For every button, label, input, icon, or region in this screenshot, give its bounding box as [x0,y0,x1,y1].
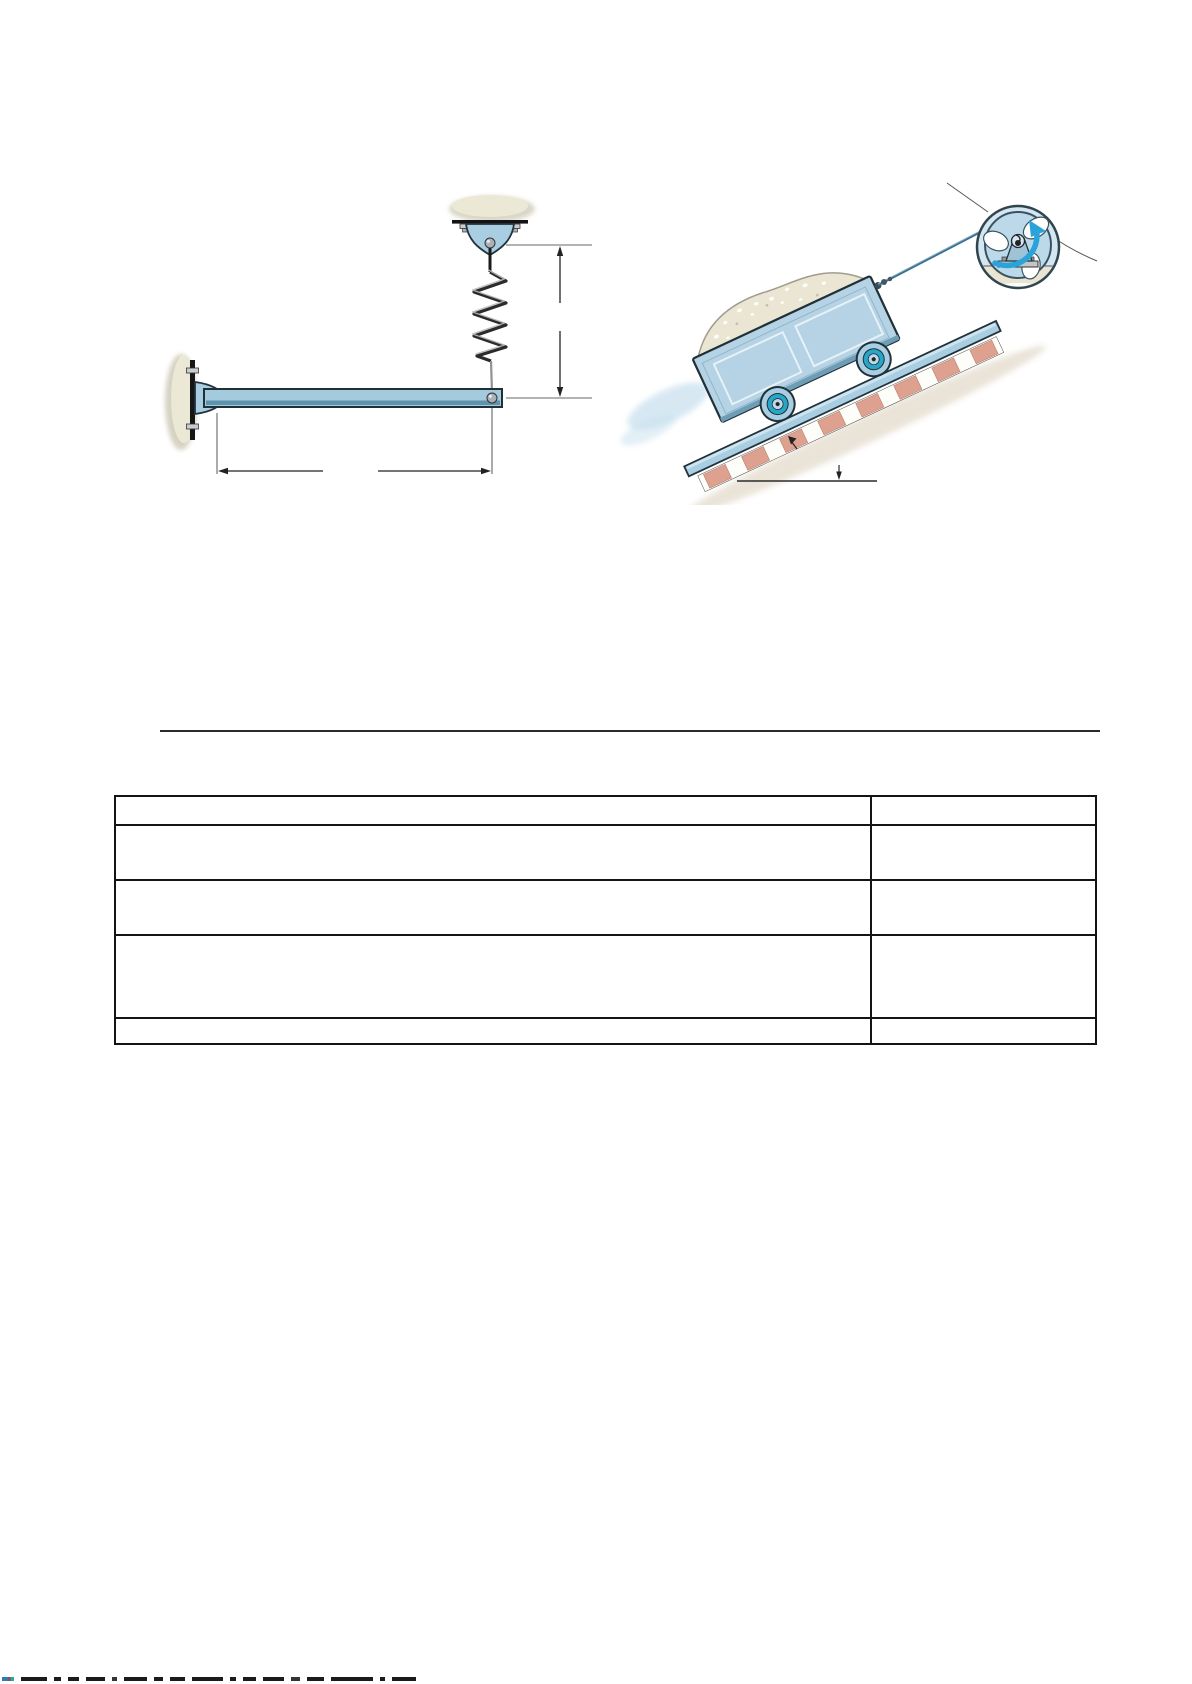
section-divider [160,730,1100,732]
spring [473,270,507,361]
beam-spring-figure [150,170,600,490]
table-cell [116,797,870,824]
document-page [0,0,1192,1684]
table-row [116,934,1095,1017]
winch-leader-top [947,183,988,212]
wall-bolt-top [187,368,199,373]
table-cell [116,826,870,880]
table-cell [116,881,870,934]
mine-cart-figure [590,160,1130,505]
ceiling-pin [485,238,495,248]
table-cell [870,881,1095,934]
beam [204,389,502,407]
beam-end-pin [487,393,497,403]
ceiling-mount [449,195,535,255]
table-cell [870,826,1095,880]
horizontal-dimension [217,408,492,474]
table-cell [870,936,1095,1017]
table-row [116,1017,1095,1043]
table-cell [116,1019,870,1043]
table-row [116,824,1095,880]
winch [947,183,1097,311]
results-table [114,795,1097,1045]
clipped-text-fragment [2,1677,642,1684]
table-cell [870,1019,1095,1043]
table-cell [116,936,870,1017]
wall-bolt-bottom [187,424,199,429]
motion-blur [617,373,715,452]
vertical-dimension [506,245,592,398]
cable [878,229,984,285]
table-cell [870,797,1095,824]
table-row [116,879,1095,934]
table-row [116,797,1095,824]
